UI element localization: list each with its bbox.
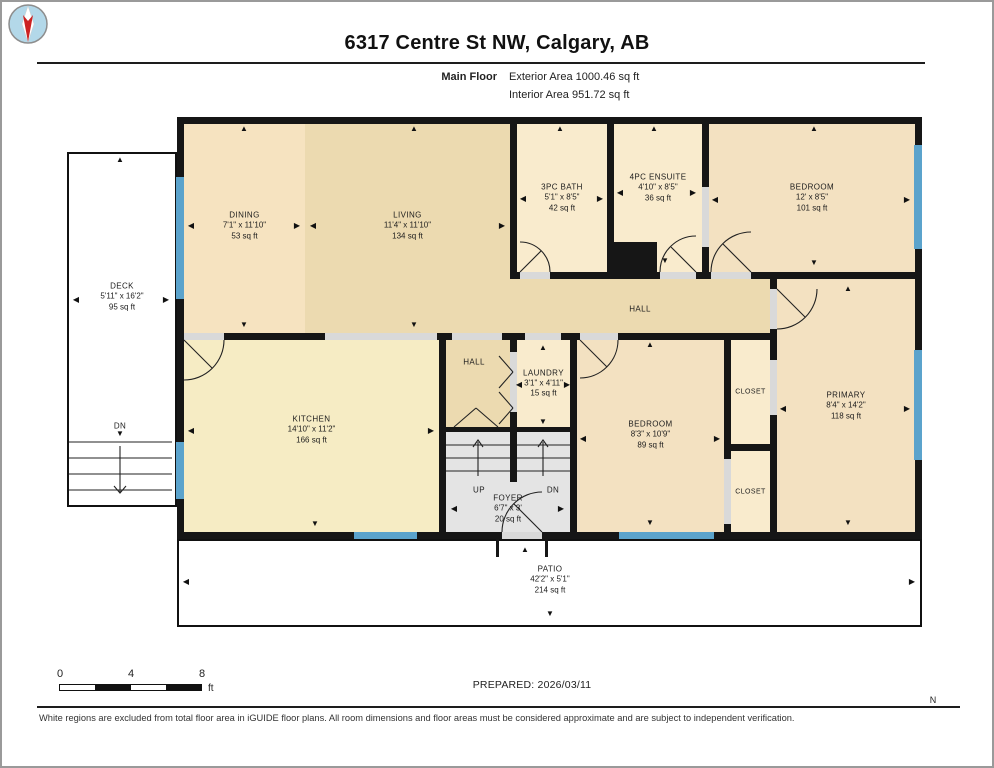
dimension-arrow-r: ▶	[597, 195, 603, 203]
room-label-bedroom-bottom: BEDROOM8'3" x 10'9"89 sq ft	[628, 419, 672, 450]
dimension-arrow-l: ◀	[516, 381, 522, 389]
plan-label: HALL	[463, 358, 485, 367]
window	[914, 350, 922, 460]
window	[176, 177, 184, 299]
room-label-bath-3pc: 3PC BATH5'1" x 8'5"42 sq ft	[541, 182, 583, 213]
dimension-arrow-d: ▼	[661, 257, 669, 265]
dimension-arrow-r: ▶	[909, 578, 915, 586]
dimension-arrow-l: ◀	[188, 427, 194, 435]
dimension-arrow-r: ▶	[163, 296, 169, 304]
dimension-arrow-u: ▲	[410, 125, 418, 133]
dimension-arrow-l: ◀	[73, 296, 79, 304]
dimension-arrow-u: ▲	[844, 285, 852, 293]
dimension-arrow-r: ▶	[499, 222, 505, 230]
window	[354, 532, 417, 539]
wall-patch	[496, 539, 499, 557]
wall-patch	[545, 539, 548, 557]
scale-tick-8: 8	[199, 668, 205, 680]
dimension-arrow-d: ▼	[844, 519, 852, 527]
dimension-arrow-u: ▲	[646, 341, 654, 349]
dimension-arrow-r: ▶	[690, 189, 696, 197]
scale-tick-0: 0	[57, 668, 63, 680]
dimension-arrow-d: ▼	[410, 321, 418, 329]
dimension-arrow-d: ▼	[311, 520, 319, 528]
dimension-arrow-d: ▼	[646, 519, 654, 527]
dimension-arrow-l: ◀	[712, 196, 718, 204]
dimension-arrow-r: ▶	[428, 427, 434, 435]
plan-label: DN	[114, 422, 126, 431]
dimension-arrow-r: ▶	[564, 381, 570, 389]
window	[914, 145, 922, 249]
door-opening	[770, 289, 777, 329]
dimension-arrow-r: ▶	[714, 435, 720, 443]
deck-outline	[67, 152, 177, 507]
door-opening	[702, 187, 709, 247]
wall-patch	[614, 242, 657, 272]
room-label-closet-top: CLOSET	[735, 387, 765, 396]
dimension-arrow-r: ▶	[904, 405, 910, 413]
dimension-arrow-l: ◀	[310, 222, 316, 230]
dimension-arrow-u: ▲	[116, 156, 124, 164]
dimension-arrow-u: ▲	[810, 125, 818, 133]
scale-tick-4: 4	[128, 668, 134, 680]
dimension-arrow-l: ◀	[520, 195, 526, 203]
room-label-closet-bottom: CLOSET	[735, 487, 765, 496]
room-label-primary: PRIMARY8'4" x 14'2"118 sq ft	[826, 390, 865, 421]
plan-label: HALL	[629, 305, 651, 314]
dimension-arrow-l: ◀	[188, 222, 194, 230]
door-opening	[184, 333, 224, 340]
plan-label: DN	[547, 486, 559, 495]
window	[619, 532, 714, 539]
room-label-deck: DECK5'11" x 16'2"95 sq ft	[100, 281, 143, 312]
dimension-arrow-u: ▲	[539, 344, 547, 352]
door-opening	[711, 272, 751, 279]
dimension-arrow-u: ▲	[521, 546, 529, 554]
room-label-dining: DINING7'1" x 11'10"53 sq ft	[223, 210, 266, 241]
dimension-arrow-r: ▶	[904, 196, 910, 204]
window	[176, 442, 184, 499]
door-opening	[724, 459, 731, 524]
room-label-laundry: LAUNDRY3'1" x 4'11"15 sq ft	[523, 368, 564, 399]
room-label-ensuite-4pc: 4PC ENSUITE4'10" x 8'5"36 sq ft	[630, 172, 687, 203]
dimension-arrow-d: ▼	[810, 259, 818, 267]
room-stairs-up	[446, 432, 510, 482]
room-label-bedroom-top: BEDROOM12' x 8'5"101 sq ft	[790, 182, 834, 213]
dimension-arrow-r: ▶	[558, 505, 564, 513]
door-opening	[325, 333, 437, 340]
disclaimer-text: White regions are excluded from total fl…	[39, 713, 969, 723]
door-opening	[520, 272, 550, 279]
dimension-arrow-d: ▼	[116, 430, 124, 438]
room-label-patio: PATIO42'2" x 5'1"214 sq ft	[530, 564, 569, 595]
footer-divider	[37, 706, 960, 708]
scale-bar	[59, 684, 202, 691]
room-stairs-down	[517, 432, 570, 482]
room-label-kitchen: KITCHEN14'10" x 11'2"166 sq ft	[288, 414, 336, 445]
dimension-arrow-u: ▲	[650, 125, 658, 133]
door-opening	[770, 360, 777, 415]
compass-north-label: N	[930, 695, 937, 705]
dimension-arrow-d: ▼	[539, 418, 547, 426]
room-label-living: LIVING11'4" x 11'10"134 sq ft	[384, 210, 431, 241]
dimension-arrow-d: ▼	[240, 321, 248, 329]
floorplan-page: 6317 Centre St NW, Calgary, AB Main Floo…	[0, 0, 994, 768]
door-opening	[660, 272, 696, 279]
dimension-arrow-l: ◀	[451, 505, 457, 513]
door-opening	[452, 333, 502, 340]
plan-label: UP	[473, 486, 485, 495]
room-hall-small	[446, 340, 510, 427]
door-opening	[580, 333, 618, 340]
dimension-arrow-u: ▲	[240, 125, 248, 133]
dimension-arrow-u: ▲	[556, 125, 564, 133]
scale-unit-label: ft	[208, 683, 214, 694]
dimension-arrow-l: ◀	[183, 578, 189, 586]
room-label-foyer: FOYER6'7" x 3'20 sq ft	[493, 493, 523, 524]
prepared-date: PREPARED: 2026/03/11	[422, 679, 642, 691]
floorplan: DINING7'1" x 11'10"53 sq ftLIVING11'4" x…	[2, 2, 994, 768]
dimension-arrow-l: ◀	[780, 405, 786, 413]
dimension-arrow-l: ◀	[617, 189, 623, 197]
door-opening	[525, 333, 561, 340]
dimension-arrow-l: ◀	[580, 435, 586, 443]
door-opening	[502, 532, 542, 539]
dimension-arrow-r: ▶	[294, 222, 300, 230]
dimension-arrow-d: ▼	[546, 610, 554, 618]
